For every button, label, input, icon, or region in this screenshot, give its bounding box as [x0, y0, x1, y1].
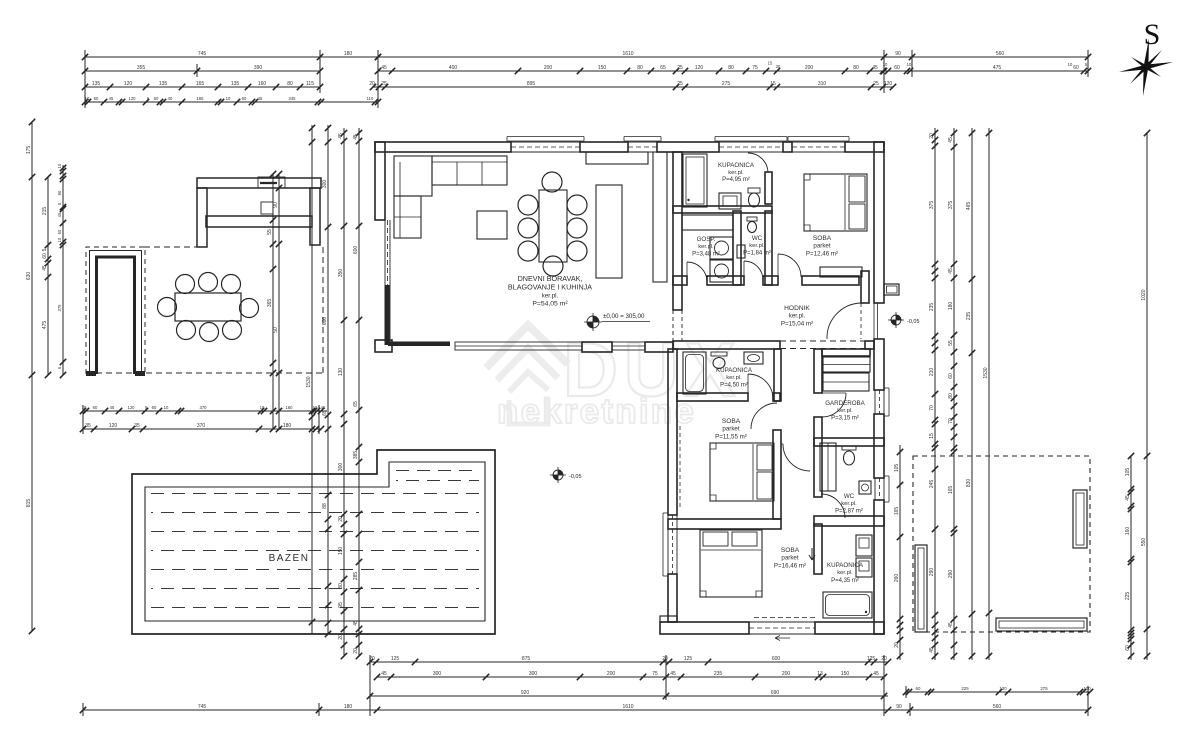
- svg-text:GOSP.: GOSP.: [697, 236, 716, 243]
- svg-text:150: 150: [841, 671, 850, 677]
- svg-text:10: 10: [883, 62, 888, 67]
- svg-text:165: 165: [197, 96, 205, 101]
- svg-text:13: 13: [817, 671, 823, 677]
- svg-text:385: 385: [353, 451, 359, 460]
- svg-text:60: 60: [154, 96, 159, 101]
- svg-text:15: 15: [770, 81, 776, 87]
- svg-text:SOBA: SOBA: [813, 235, 832, 242]
- svg-text:160: 160: [258, 81, 267, 87]
- svg-text:BLAGOVANJE I KUHINJA: BLAGOVANJE I KUHINJA: [508, 283, 592, 292]
- svg-text:165: 165: [196, 81, 205, 87]
- svg-text:130: 130: [999, 686, 1007, 691]
- svg-text:25: 25: [677, 65, 683, 71]
- svg-text:600: 600: [353, 246, 359, 255]
- svg-text:45: 45: [321, 405, 326, 410]
- svg-text:ker.pl.: ker.pl.: [698, 244, 714, 250]
- svg-text:90: 90: [57, 190, 62, 195]
- svg-text:ker.pl.: ker.pl.: [789, 313, 806, 320]
- svg-text:10: 10: [226, 96, 231, 101]
- svg-text:-0,05: -0,05: [569, 474, 582, 480]
- svg-text:25: 25: [381, 81, 387, 87]
- svg-text:300: 300: [322, 180, 328, 189]
- svg-text:285: 285: [353, 572, 359, 581]
- svg-text:45: 45: [110, 405, 115, 410]
- svg-text:1530: 1530: [983, 367, 989, 378]
- svg-text:100: 100: [1083, 686, 1091, 691]
- svg-text:60: 60: [1125, 645, 1131, 651]
- svg-text:375: 375: [57, 304, 62, 312]
- svg-text:120: 120: [884, 81, 893, 87]
- svg-text:45: 45: [338, 133, 344, 139]
- svg-text:ker.pl.: ker.pl.: [728, 170, 744, 176]
- svg-text:180: 180: [344, 51, 353, 57]
- svg-text:parket: parket: [813, 243, 830, 250]
- svg-text:895: 895: [527, 81, 536, 87]
- svg-text:50: 50: [273, 327, 279, 333]
- svg-text:355: 355: [137, 65, 146, 71]
- svg-text:60: 60: [916, 686, 921, 691]
- svg-text:1610: 1610: [622, 51, 633, 57]
- svg-text:ker.pl.: ker.pl.: [837, 570, 853, 576]
- svg-text:225: 225: [961, 686, 969, 691]
- svg-text:90: 90: [895, 51, 901, 57]
- svg-text:45: 45: [929, 647, 935, 653]
- svg-text:45: 45: [1125, 495, 1131, 501]
- svg-text:630: 630: [26, 272, 32, 281]
- svg-text:300: 300: [433, 671, 442, 677]
- svg-text:60: 60: [152, 405, 157, 410]
- svg-text:1610: 1610: [622, 704, 633, 710]
- svg-text:P=11,55 m²: P=11,55 m²: [715, 434, 747, 441]
- svg-text:SOBA: SOBA: [722, 418, 741, 425]
- svg-text:BAZEN: BAZEN: [269, 553, 310, 564]
- svg-text:115: 115: [306, 81, 314, 87]
- svg-text:60: 60: [94, 96, 99, 101]
- svg-text:90: 90: [273, 202, 279, 208]
- svg-text:120: 120: [109, 423, 118, 429]
- svg-text:560: 560: [996, 51, 1005, 57]
- svg-text:S: S: [1144, 18, 1161, 51]
- svg-text:45: 45: [57, 212, 62, 217]
- svg-text:P=2,87 m²: P=2,87 m²: [835, 509, 863, 515]
- svg-text:88: 88: [322, 503, 328, 509]
- svg-text:350: 350: [338, 269, 344, 278]
- svg-text:290: 290: [929, 568, 935, 577]
- svg-text:80: 80: [948, 393, 954, 399]
- svg-text:P=3,15 m²: P=3,15 m²: [831, 416, 859, 422]
- svg-text:105: 105: [894, 464, 900, 473]
- svg-text:45: 45: [381, 671, 387, 677]
- svg-text:920: 920: [521, 690, 530, 696]
- svg-text:40: 40: [168, 96, 173, 101]
- svg-text:10: 10: [907, 62, 912, 67]
- svg-text:parket: parket: [781, 555, 798, 562]
- svg-text:10: 10: [164, 405, 169, 410]
- svg-text:120: 120: [129, 96, 137, 101]
- svg-text:375: 375: [929, 201, 935, 210]
- svg-text:P=3,48 m²: P=3,48 m²: [692, 252, 720, 258]
- svg-text:20: 20: [662, 656, 668, 662]
- svg-text:10: 10: [57, 163, 62, 168]
- svg-text:60: 60: [894, 65, 900, 71]
- svg-text:55: 55: [267, 229, 273, 235]
- svg-text:70: 70: [929, 405, 935, 411]
- svg-text:P=16,46 m²: P=16,46 m²: [774, 563, 806, 570]
- svg-text:550: 550: [1141, 538, 1147, 547]
- svg-text:-0,05: -0,05: [907, 319, 920, 325]
- svg-text:75: 75: [752, 65, 758, 71]
- svg-text:65: 65: [660, 65, 666, 71]
- svg-text:120: 120: [124, 81, 133, 87]
- svg-text:20: 20: [369, 81, 375, 87]
- svg-text:135: 135: [159, 81, 168, 87]
- svg-text:475: 475: [993, 65, 1002, 71]
- svg-text:150: 150: [598, 65, 607, 71]
- svg-text:45: 45: [873, 671, 879, 677]
- svg-text:20: 20: [353, 648, 359, 654]
- svg-text:ker.pl.: ker.pl.: [841, 501, 857, 507]
- svg-text:165: 165: [948, 486, 954, 495]
- svg-text:215: 215: [42, 207, 48, 216]
- svg-text:375: 375: [948, 201, 954, 210]
- svg-text:80: 80: [338, 583, 344, 589]
- svg-text:235: 235: [929, 303, 935, 312]
- svg-text:310: 310: [818, 81, 827, 87]
- svg-text:GARDEROBA: GARDEROBA: [825, 400, 865, 407]
- svg-text:200: 200: [782, 671, 791, 677]
- svg-text:745: 745: [198, 704, 207, 710]
- svg-text:815: 815: [26, 499, 32, 508]
- svg-text:125: 125: [391, 656, 400, 662]
- svg-text:875: 875: [522, 656, 531, 662]
- svg-text:275: 275: [722, 81, 731, 87]
- svg-text:25: 25: [677, 81, 683, 87]
- svg-text:160: 160: [286, 405, 294, 410]
- svg-text:1530: 1530: [306, 376, 312, 387]
- svg-text:745: 745: [198, 51, 207, 57]
- svg-text:65: 65: [353, 401, 359, 407]
- svg-text:1020: 1020: [1141, 289, 1147, 300]
- svg-text:365: 365: [267, 299, 273, 308]
- svg-text:10: 10: [1068, 62, 1073, 67]
- svg-text:105: 105: [1125, 468, 1131, 477]
- svg-text:90: 90: [896, 704, 902, 710]
- svg-text:KUPAONICA: KUPAONICA: [716, 367, 753, 374]
- svg-text:20: 20: [929, 133, 935, 139]
- svg-text:600: 600: [322, 317, 328, 326]
- svg-text:130: 130: [338, 368, 344, 377]
- svg-text:180: 180: [283, 423, 292, 429]
- svg-text:180: 180: [948, 302, 954, 311]
- svg-text:P=12,46 m²: P=12,46 m²: [806, 251, 838, 258]
- svg-text:200: 200: [544, 65, 553, 71]
- svg-text:235: 235: [966, 312, 972, 321]
- svg-text:125: 125: [684, 656, 693, 662]
- svg-text:180: 180: [344, 704, 353, 710]
- svg-text:45: 45: [948, 622, 954, 628]
- svg-text:HODNIK: HODNIK: [784, 305, 810, 312]
- svg-text:15: 15: [929, 433, 935, 439]
- svg-text:25: 25: [873, 81, 879, 87]
- svg-text:160: 160: [1125, 527, 1131, 536]
- svg-text:175: 175: [26, 146, 32, 155]
- svg-text:75: 75: [652, 671, 658, 677]
- svg-text:55: 55: [948, 340, 954, 346]
- svg-text:60: 60: [948, 373, 954, 379]
- svg-text:200: 200: [805, 65, 814, 71]
- svg-text:10: 10: [260, 405, 265, 410]
- svg-text:390: 390: [254, 65, 263, 71]
- svg-text:45: 45: [42, 265, 48, 271]
- svg-text:45: 45: [353, 134, 359, 140]
- svg-text:600: 600: [772, 656, 781, 662]
- svg-text:45: 45: [258, 96, 263, 101]
- svg-text:345: 345: [289, 96, 297, 101]
- svg-text:45: 45: [948, 268, 954, 274]
- svg-text:125: 125: [867, 656, 876, 662]
- svg-text:60: 60: [57, 229, 62, 234]
- svg-text:20: 20: [338, 634, 344, 640]
- svg-text:690: 690: [771, 690, 780, 696]
- svg-text:45: 45: [670, 671, 676, 677]
- svg-text:WC: WC: [752, 235, 763, 242]
- svg-text:P=54,05 m²: P=54,05 m²: [532, 301, 568, 308]
- svg-text:P=4,35 m²: P=4,35 m²: [831, 578, 859, 584]
- svg-text:60: 60: [93, 405, 98, 410]
- svg-text:120: 120: [128, 405, 136, 410]
- svg-text:60: 60: [242, 96, 247, 101]
- svg-text:45: 45: [353, 620, 359, 626]
- svg-text:260: 260: [894, 574, 900, 583]
- svg-text:10: 10: [82, 405, 87, 410]
- svg-text:parket: parket: [722, 426, 739, 433]
- svg-text:65: 65: [322, 410, 328, 416]
- svg-text:20: 20: [338, 516, 344, 522]
- svg-text:235: 235: [714, 671, 723, 677]
- svg-text:ker.pl.: ker.pl.: [837, 408, 853, 414]
- svg-text:275: 275: [1040, 686, 1048, 691]
- svg-text:200: 200: [607, 671, 616, 677]
- svg-text:35: 35: [85, 423, 91, 429]
- svg-text:95: 95: [338, 602, 344, 608]
- svg-text:135: 135: [231, 81, 240, 87]
- svg-text:110: 110: [367, 96, 374, 101]
- svg-text:45: 45: [381, 65, 387, 71]
- svg-text:80: 80: [728, 65, 734, 71]
- svg-text:45: 45: [872, 65, 878, 71]
- svg-text:400: 400: [449, 65, 458, 71]
- svg-text:45: 45: [948, 137, 954, 143]
- svg-text:nekretnine: nekretnine: [497, 392, 696, 431]
- svg-text:245: 245: [929, 480, 935, 489]
- svg-text:135: 135: [92, 81, 101, 87]
- svg-text:830: 830: [966, 479, 972, 488]
- svg-text:ker.pl.: ker.pl.: [542, 293, 559, 300]
- svg-text:165: 165: [894, 507, 900, 516]
- svg-text:300: 300: [529, 671, 538, 677]
- svg-text:20: 20: [894, 642, 900, 648]
- svg-text:P=4,95 m²: P=4,95 m²: [722, 177, 750, 183]
- svg-text:P=1,84 m²: P=1,84 m²: [743, 251, 771, 257]
- svg-text:ker.pl.: ker.pl.: [749, 243, 765, 249]
- svg-text:300: 300: [338, 463, 344, 472]
- svg-text:15: 15: [768, 61, 773, 66]
- svg-text:P=15,04 m²: P=15,04 m²: [781, 321, 813, 328]
- svg-text:30: 30: [776, 64, 781, 69]
- svg-text:±0,00 = 305,00: ±0,00 = 305,00: [603, 313, 645, 320]
- svg-text:80: 80: [853, 65, 859, 71]
- svg-text:KUPAONICA: KUPAONICA: [827, 562, 864, 569]
- svg-text:5: 5: [42, 248, 48, 251]
- svg-text:35: 35: [134, 423, 140, 429]
- svg-text:P=4,50 m²: P=4,50 m²: [720, 383, 748, 389]
- svg-text:225: 225: [1125, 592, 1131, 601]
- svg-text:80: 80: [637, 65, 643, 71]
- svg-text:290: 290: [948, 570, 954, 579]
- svg-text:475: 475: [42, 321, 48, 330]
- svg-text:150: 150: [338, 547, 344, 556]
- svg-text:210: 210: [929, 368, 935, 377]
- svg-text:80: 80: [287, 81, 293, 87]
- svg-text:ker.pl.: ker.pl.: [726, 375, 742, 381]
- svg-text:370: 370: [200, 405, 208, 410]
- svg-text:120: 120: [695, 65, 704, 71]
- svg-text:WC: WC: [844, 493, 855, 500]
- svg-text:SOBA: SOBA: [781, 547, 800, 554]
- svg-text:10: 10: [57, 237, 62, 242]
- svg-text:370: 370: [197, 423, 206, 429]
- svg-text:45: 45: [109, 96, 114, 101]
- svg-text:70: 70: [948, 418, 954, 424]
- svg-text:KUPAONICA: KUPAONICA: [718, 162, 755, 169]
- svg-text:560: 560: [993, 704, 1002, 710]
- svg-text:465: 465: [966, 202, 972, 211]
- svg-text:60: 60: [42, 253, 48, 259]
- svg-text:60: 60: [1073, 65, 1079, 71]
